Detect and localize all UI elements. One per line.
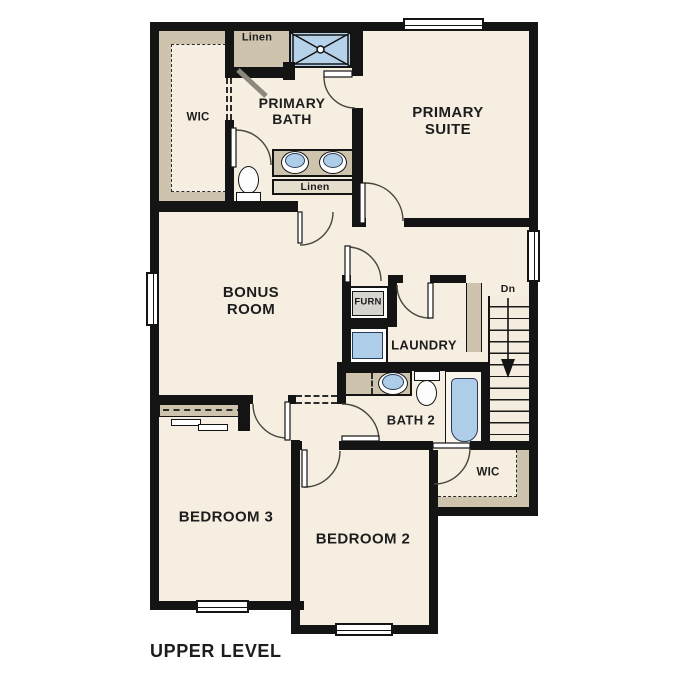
bedroom3-bypass-door-left <box>171 419 201 426</box>
wall-bedroom3-door-stub <box>288 395 296 404</box>
primary-sink-right-basin <box>323 153 343 168</box>
floor-plan: PRIMARY BATH PRIMARY SUITE BONUS ROOM LA… <box>0 0 687 687</box>
wall-bonus-bottom <box>150 395 253 404</box>
label-bath2: BATH 2 <box>387 414 435 429</box>
wall-shower-corner-stub <box>283 62 295 80</box>
label-furnace: FURN <box>354 298 381 309</box>
wall-wic2-top <box>470 441 538 450</box>
label-wic-bedroom2: WIC <box>477 466 500 479</box>
wall-bedroom2-top-mid <box>339 441 433 450</box>
label-bonus-room: BONUS ROOM <box>206 284 296 319</box>
bathtub <box>451 378 478 442</box>
wall-laundry-bath2 <box>337 362 490 371</box>
wall-suite-bottom-left <box>352 218 366 227</box>
label-bedroom2: BEDROOM 2 <box>316 530 410 547</box>
washer-tub <box>352 332 383 359</box>
plan-title: UPPER LEVEL <box>150 641 282 662</box>
label-stairs-dn: Dn <box>501 283 515 295</box>
label-linen-hall: Linen <box>242 32 272 45</box>
wall-suite-bottom-right <box>404 218 538 227</box>
floor-bedroom2 <box>296 511 433 630</box>
window-stair-landing <box>527 230 540 282</box>
window-bedroom3 <box>196 600 249 613</box>
label-primary-bath: PRIMARY BATH <box>246 95 338 127</box>
bath2-counter-dash <box>371 373 374 394</box>
wall-bath2-left <box>337 362 346 404</box>
window-bonus-room <box>146 272 159 326</box>
label-wic-primary: WIC <box>187 111 210 124</box>
wall-bath-suite-lower <box>352 108 363 227</box>
label-primary-suite: PRIMARY SUITE <box>398 104 498 139</box>
primary-sink-left-basin <box>285 153 305 168</box>
wall-linen-bottom <box>225 67 289 78</box>
bath2-toilet-bowl <box>416 380 437 406</box>
bath2-sink-basin <box>382 374 404 390</box>
wall-stair-left <box>481 362 490 450</box>
wall-wic2-bottom <box>429 507 538 516</box>
wall-bedroom-divider <box>291 440 300 634</box>
wall-laundry-top-right <box>430 275 466 283</box>
wall-laundry-top-left <box>397 275 403 283</box>
label-laundry: LAUNDRY <box>391 339 457 354</box>
wall-furn-bottom <box>342 318 397 327</box>
wic-primary-opening <box>226 78 232 120</box>
label-bedroom3: BEDROOM 3 <box>179 508 273 525</box>
wall-bath-hall <box>150 201 298 212</box>
window-bedroom2 <box>335 623 393 636</box>
laundry-stair-halfwall <box>466 283 482 352</box>
window-primary-suite <box>403 18 484 31</box>
primary-toilet-bowl <box>238 166 259 194</box>
shower <box>289 31 352 68</box>
bedroom3-bypass-door-right <box>198 424 228 431</box>
wall-wic1-right-lower <box>225 120 234 201</box>
label-linen-vanity: Linen <box>301 181 330 193</box>
wall-bedroom2-right <box>429 450 438 634</box>
staircase <box>488 296 529 448</box>
bedroom3-closet-shelf-dash <box>163 409 243 411</box>
wall-bath-suite-upper <box>352 22 363 76</box>
bonus-hall-cased-opening <box>296 395 337 404</box>
